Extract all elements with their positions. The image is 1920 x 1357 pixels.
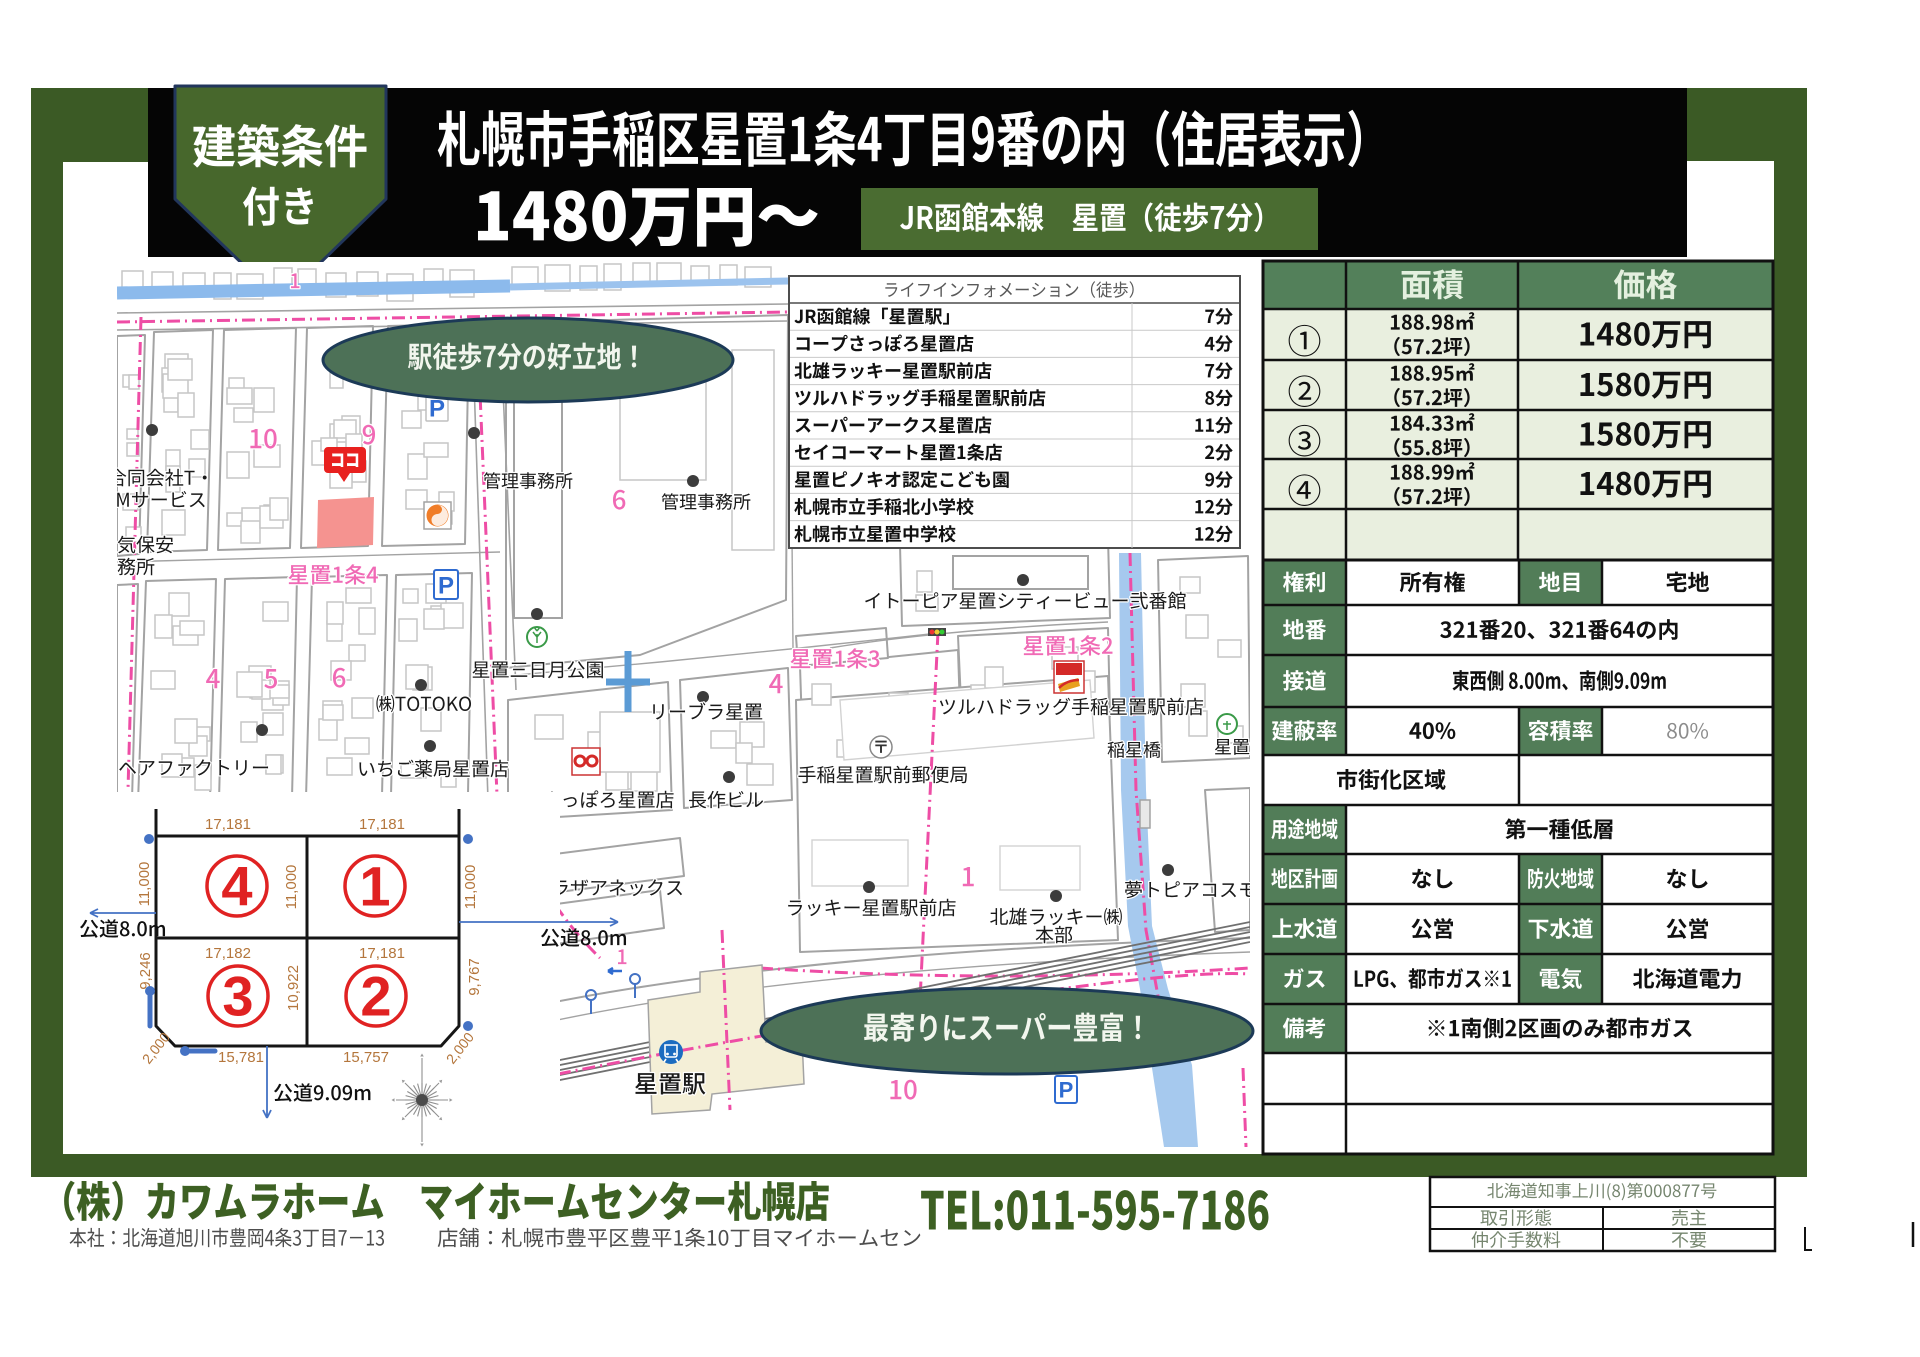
svg-text:2: 2 (360, 965, 391, 1028)
svg-text:17,181: 17,181 (359, 945, 405, 962)
svg-text:9,246: 9,246 (137, 952, 154, 990)
svg-text:17,181: 17,181 (205, 816, 251, 833)
svg-text:15,757: 15,757 (343, 1049, 389, 1066)
svg-text:3: 3 (222, 965, 253, 1028)
svg-text:11,000: 11,000 (136, 862, 153, 907)
svg-text:P: P (1059, 1078, 1074, 1103)
svg-text:9,767: 9,767 (466, 958, 483, 996)
svg-text:11,000: 11,000 (283, 865, 300, 910)
svg-text:11,000: 11,000 (462, 865, 479, 910)
svg-text:15,781: 15,781 (218, 1049, 264, 1066)
svg-text:17,182: 17,182 (205, 945, 251, 962)
svg-text:1: 1 (359, 855, 390, 918)
svg-text:4: 4 (221, 855, 252, 918)
svg-text:10,922: 10,922 (285, 965, 302, 1011)
svg-text:17,181: 17,181 (359, 816, 405, 833)
svg-text:P: P (438, 572, 454, 599)
